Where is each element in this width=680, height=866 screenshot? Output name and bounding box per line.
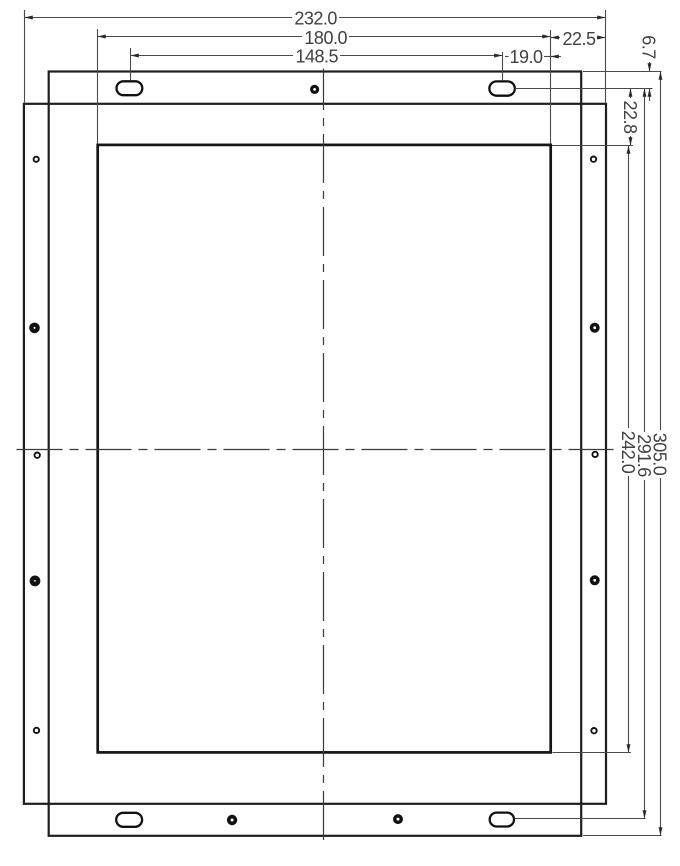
svg-text:305.0: 305.0 (649, 433, 669, 476)
svg-text:19.0: 19.0 (509, 47, 543, 67)
svg-text:232.0: 232.0 (294, 8, 337, 28)
svg-text:22.8: 22.8 (620, 100, 640, 134)
svg-text:22.5: 22.5 (562, 29, 596, 49)
svg-text:148.5: 148.5 (296, 47, 339, 67)
svg-text:6.7: 6.7 (639, 35, 659, 59)
svg-text:180.0: 180.0 (304, 28, 347, 48)
